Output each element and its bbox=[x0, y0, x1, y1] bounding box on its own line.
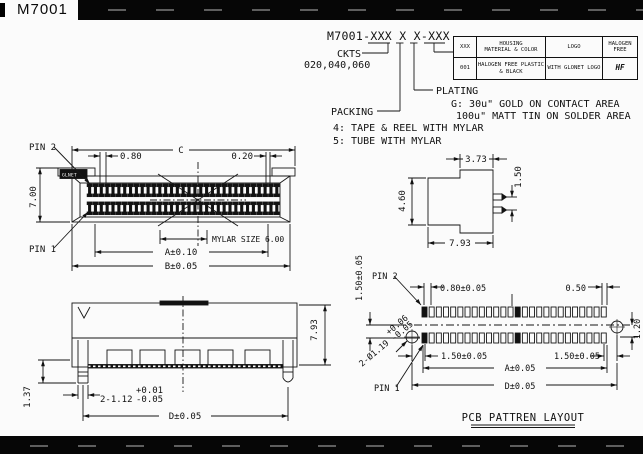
pcb-pin1-label: PIN 1 bbox=[374, 384, 400, 394]
dim-b-label: B±0.05 bbox=[165, 262, 198, 272]
peg-tol-plus: +0.01 bbox=[136, 386, 163, 396]
dim-793-front-label: 7.93 bbox=[310, 319, 320, 341]
dim-080-label: 0.80 bbox=[120, 152, 142, 162]
pcb-pin2-label: PIN 2 bbox=[372, 272, 398, 282]
peg-dim-label: 2-1.12 bbox=[100, 395, 133, 405]
peg-tol-minus: -0.05 bbox=[136, 395, 163, 405]
plating-tin-note: 100u" MATT TIN ON SOLDER AREA bbox=[456, 111, 631, 122]
dim-373-label: 3.73 bbox=[465, 155, 487, 165]
pcb-dim-d-label: D±0.05 bbox=[505, 382, 536, 392]
packing-label: PACKING bbox=[331, 107, 373, 118]
pcb-dim-080-label: 0.80±0.05 bbox=[440, 284, 486, 294]
ordering-code: M7001-XXX X X-XXX bbox=[327, 29, 450, 43]
spec-row-halogen: HF bbox=[602, 57, 637, 79]
spec-table: XXX HOUSINGMATERIAL & COLOR LOGO HALOGEN… bbox=[453, 36, 638, 80]
spec-col-xxx: XXX bbox=[454, 37, 476, 57]
spec-col-housing: HOUSINGMATERIAL & COLOR bbox=[476, 37, 545, 57]
pcb-dim-150-right-label: 1.50±0.05 bbox=[554, 352, 600, 362]
logo-mark-text: GLNET bbox=[62, 173, 77, 179]
dim-a-label: A±0.10 bbox=[165, 248, 198, 258]
plating-label: PLATING bbox=[436, 86, 478, 97]
spec-col-logo: LOGO bbox=[545, 37, 602, 57]
spec-row-logo: WITH GLONET LOGO bbox=[545, 57, 602, 79]
bottom-border-bar bbox=[0, 436, 643, 454]
packing-option-4: 4: TAPE & REEL WITH MYLAR bbox=[333, 123, 484, 134]
plating-gold-note: G: 30u" GOLD ON CONTACT AREA bbox=[451, 99, 620, 110]
pcb-dim-150-vert-label: 1.50±0.05 bbox=[355, 255, 365, 301]
pcb-dim-150-left-label: 1.50±0.05 bbox=[441, 352, 487, 362]
hole-callout-label: 2-Ø1.19 bbox=[357, 338, 392, 369]
dim-460-label: 4.60 bbox=[398, 190, 408, 212]
packing-option-5: 5: TUBE WITH MYLAR bbox=[333, 136, 442, 147]
dim-150-label: 1.50 bbox=[514, 166, 524, 188]
pcb-dim-120-label: 1.20 bbox=[633, 319, 643, 339]
pcb-dim-a-label: A±0.05 bbox=[505, 364, 536, 374]
dim-700-label: 7.00 bbox=[29, 186, 39, 208]
topview-pin2-label: PIN 2 bbox=[29, 143, 56, 153]
pcb-dim-050-label: 0.50 bbox=[566, 284, 586, 294]
dim-c-label: C bbox=[178, 146, 183, 156]
mylar-size-label: MYLAR SIZE 6.00 bbox=[212, 235, 284, 244]
dim-137-label: 1.37 bbox=[23, 386, 33, 408]
ckts-values: 020,040,060 bbox=[304, 60, 370, 71]
dim-d-front-label: D±0.05 bbox=[169, 412, 202, 422]
spec-row-code: 001 bbox=[454, 57, 476, 79]
pcb-layout-title: PCB PATTREN LAYOUT bbox=[462, 412, 585, 424]
spec-col-halogen: HALOGENFREE bbox=[602, 37, 637, 57]
dim-793-side-label: 7.93 bbox=[449, 239, 471, 249]
topview-pin1-label: PIN 1 bbox=[29, 245, 56, 255]
spec-row-housing: HALOGEN FREE PLASTIC& BLACK bbox=[476, 57, 545, 79]
ckts-label: CKTS bbox=[337, 49, 361, 60]
dim-020-label: 0.20 bbox=[231, 152, 253, 162]
